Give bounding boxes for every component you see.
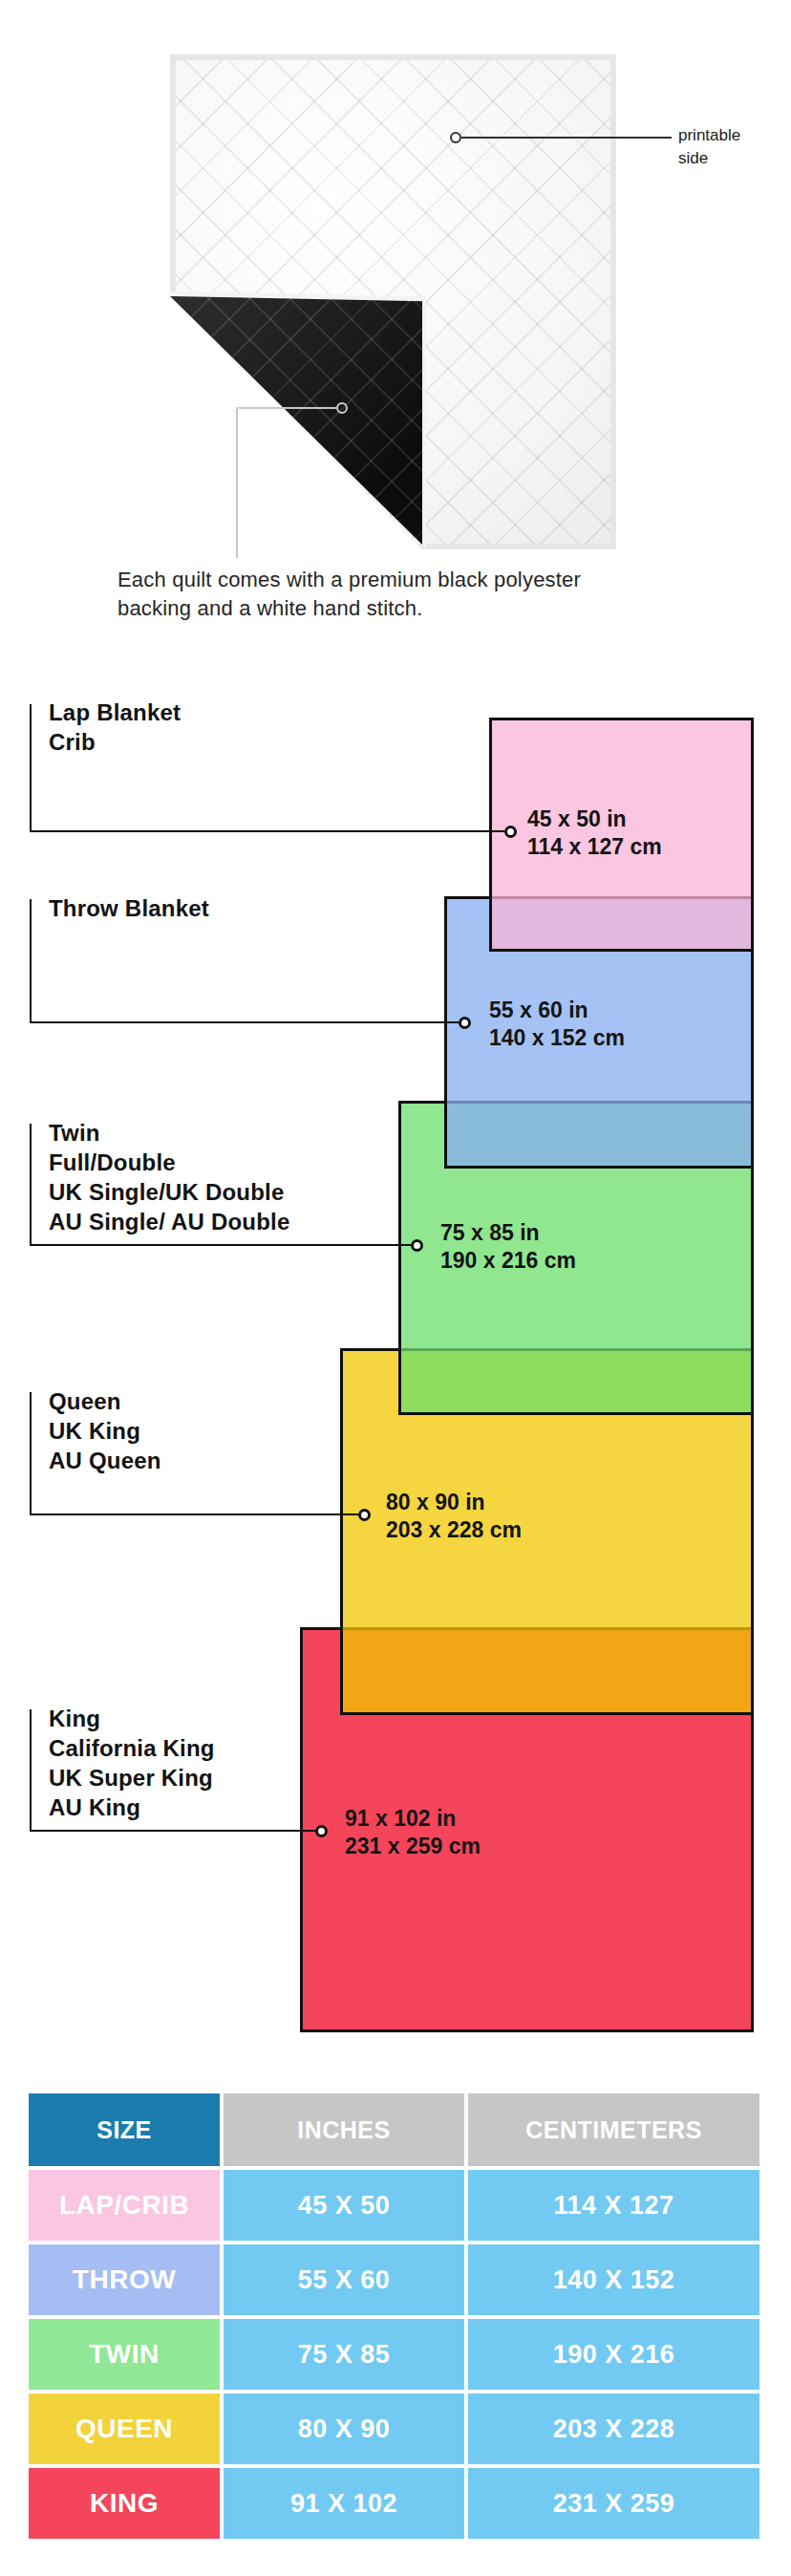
label-line: Queen — [49, 1386, 161, 1416]
label-group-throw: Throw Blanket — [49, 893, 209, 923]
callout-dot-queen — [358, 1509, 371, 1521]
table-header-size: SIZE — [29, 2093, 220, 2166]
label-line: Twin — [49, 1118, 289, 1148]
leader-line-king — [30, 1830, 315, 1832]
bracket-line-king — [30, 1709, 32, 1831]
callout-dot-lap — [504, 826, 517, 838]
quilt-caption-line2: backing and a white hand stitch. — [118, 594, 581, 623]
backing-leader-line-horizontal — [239, 407, 336, 409]
dimensions-queen: 80 x 90 in 203 x 228 cm — [386, 1489, 522, 1544]
leader-line-queen — [30, 1513, 358, 1515]
bracket-line-twin — [30, 1124, 32, 1245]
printable-side-label-line1: printable — [678, 124, 740, 147]
leader-line-twin — [30, 1244, 411, 1246]
label-group-twin: Twin Full/Double UK Single/UK Double AU … — [49, 1118, 289, 1236]
printable-side-leader-line — [461, 137, 672, 139]
printable-side-label-line2: side — [678, 147, 740, 170]
table-row-label-queen: QUEEN — [29, 2394, 220, 2464]
callout-dot-king — [315, 1825, 328, 1837]
label-group-king: King California King UK Super King AU Ki… — [49, 1704, 215, 1822]
bracket-line-throw — [30, 899, 32, 1022]
table-header-inches: INCHES — [224, 2093, 464, 2166]
size-table: SIZE INCHES CENTIMETERS LAP/CRIB 45 X 50… — [29, 2093, 759, 2539]
leader-line-lap — [30, 830, 504, 832]
dimension-inches: 80 x 90 in — [386, 1489, 522, 1516]
dimension-cm: 140 x 152 cm — [489, 1024, 625, 1052]
dimension-cm: 114 x 127 cm — [527, 833, 662, 861]
dimension-cm: 231 x 259 cm — [345, 1833, 481, 1860]
table-cell-centimeters: 190 X 216 — [468, 2319, 759, 2390]
label-line: UK Single/UK Double — [49, 1177, 289, 1207]
quilt-caption: Each quilt comes with a premium black po… — [118, 566, 581, 623]
label-line: UK Super King — [49, 1763, 215, 1792]
infographic-page: printable side Each quilt comes with a p… — [0, 0, 791, 2576]
table-cell-inches: 45 X 50 — [224, 2170, 464, 2241]
label-line: Full/Double — [49, 1148, 289, 1177]
dimension-cm: 203 x 228 cm — [386, 1516, 522, 1544]
printable-side-marker-icon — [450, 132, 461, 143]
table-cell-inches: 75 X 85 — [224, 2319, 464, 2390]
leader-line-throw — [30, 1021, 459, 1023]
dimension-cm: 190 x 216 cm — [440, 1247, 576, 1275]
quilt-caption-line1: Each quilt comes with a premium black po… — [118, 566, 581, 594]
label-line: Lap Blanket — [49, 698, 181, 727]
label-line: Crib — [49, 727, 181, 757]
label-group-lap-crib: Lap Blanket Crib — [49, 698, 181, 757]
table-cell-centimeters: 203 X 228 — [468, 2394, 759, 2464]
label-group-queen: Queen UK King AU Queen — [49, 1386, 161, 1475]
backing-leader-line-vertical — [236, 407, 238, 558]
label-line: Throw Blanket — [49, 893, 209, 923]
dimension-inches: 75 x 85 in — [440, 1219, 576, 1247]
label-line: AU Queen — [49, 1446, 161, 1475]
label-line: AU King — [49, 1792, 215, 1822]
dimensions-lap-crib: 45 x 50 in 114 x 127 cm — [527, 805, 662, 861]
dimension-inches: 55 x 60 in — [489, 997, 625, 1024]
dimension-inches: 91 x 102 in — [345, 1805, 481, 1833]
label-line: UK King — [49, 1416, 161, 1446]
callout-dot-twin — [411, 1239, 423, 1252]
table-cell-inches: 91 X 102 — [224, 2468, 464, 2539]
table-cell-centimeters: 140 X 152 — [468, 2244, 759, 2315]
dimensions-king: 91 x 102 in 231 x 259 cm — [345, 1805, 481, 1860]
table-cell-inches: 80 X 90 — [224, 2394, 464, 2464]
table-cell-centimeters: 114 X 127 — [468, 2170, 759, 2241]
table-header-centimeters: CENTIMETERS — [468, 2093, 759, 2166]
dimensions-twin: 75 x 85 in 190 x 216 cm — [440, 1219, 576, 1275]
table-row-label-throw: THROW — [29, 2244, 220, 2315]
printable-side-label: printable side — [678, 124, 740, 170]
table-cell-inches: 55 X 60 — [224, 2244, 464, 2315]
table-row-label-twin: TWIN — [29, 2319, 220, 2390]
backing-marker-icon — [336, 402, 348, 414]
table-row-label-lap-crib: LAP/CRIB — [29, 2170, 220, 2241]
table-cell-centimeters: 231 X 259 — [468, 2468, 759, 2539]
bracket-line-lap — [30, 704, 32, 831]
table-row-label-king: KING — [29, 2468, 220, 2539]
dimension-inches: 45 x 50 in — [527, 805, 662, 833]
label-line: California King — [49, 1733, 215, 1763]
dimensions-throw: 55 x 60 in 140 x 152 cm — [489, 997, 625, 1052]
label-line: King — [49, 1704, 215, 1733]
callout-dot-throw — [459, 1017, 471, 1029]
label-line: AU Single/ AU Double — [49, 1207, 289, 1236]
bracket-line-queen — [30, 1392, 32, 1514]
